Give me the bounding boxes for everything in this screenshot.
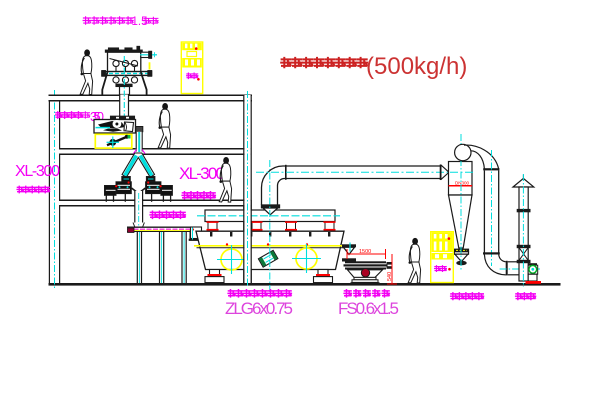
svg-text:540: 540	[387, 272, 393, 281]
svg-text:(500kg/h): (500kg/h)	[366, 53, 467, 80]
svg-text:FS0.6x1.5: FS0.6x1.5	[338, 299, 399, 318]
svg-text:DN300: DN300	[455, 181, 470, 186]
svg-text:1500: 1500	[359, 249, 371, 255]
svg-text:1.5: 1.5	[132, 16, 148, 28]
svg-text:XL-300: XL-300	[15, 163, 60, 180]
svg-text:ZLG6x0.75: ZLG6x0.75	[225, 299, 293, 318]
svg-text:XL-300: XL-300	[179, 164, 225, 183]
